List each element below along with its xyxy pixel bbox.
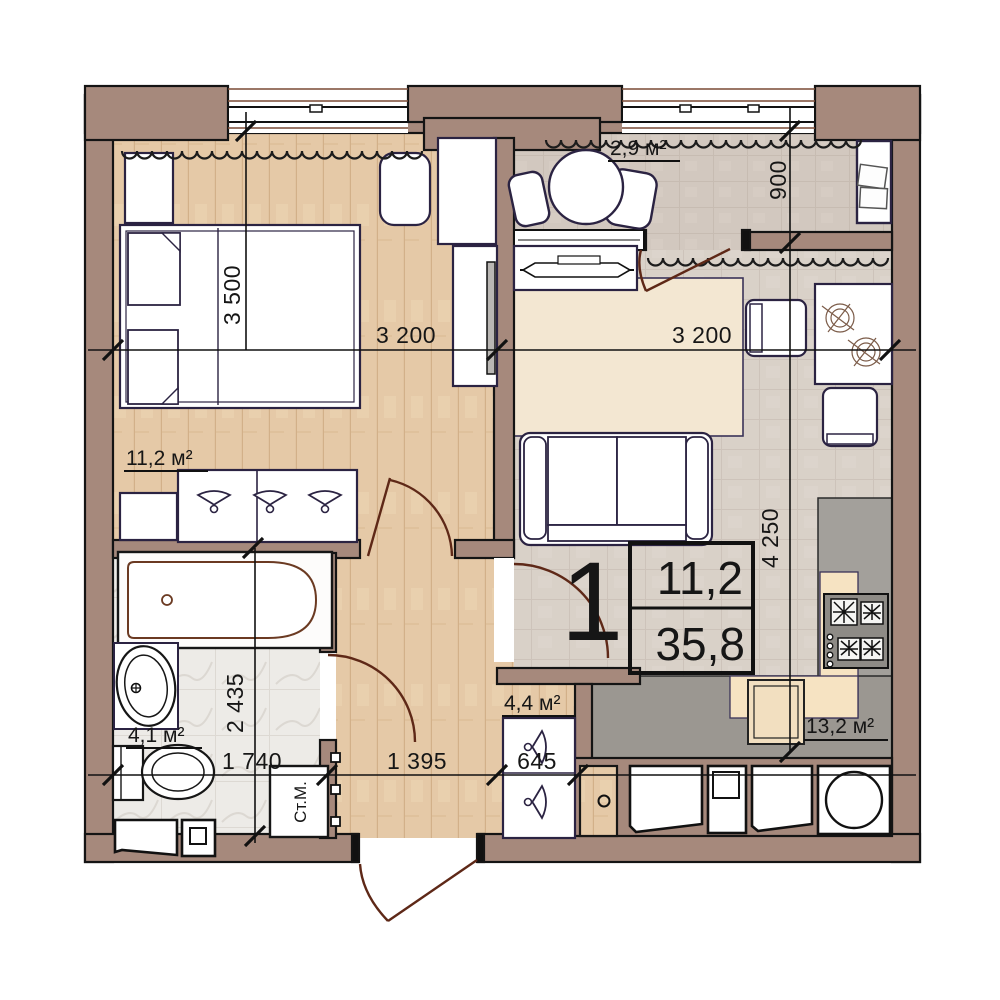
jamb [352, 834, 359, 862]
dining-chair-bottom-back [827, 434, 873, 444]
bedroom-area-label: 11,2 м² [126, 447, 193, 470]
washing-machine-label: Ст.М. [291, 781, 310, 823]
floor-plan-drawing: Ст.М. [0, 0, 1000, 1000]
wall-left [85, 95, 113, 862]
duct-box-inner [190, 828, 206, 844]
living-door-opening [494, 558, 514, 662]
pilaster-top-left [85, 86, 228, 140]
pilaster-top-middle [408, 86, 622, 122]
pilaster-top-right [815, 86, 920, 140]
wardrobe-bedroom [178, 470, 357, 542]
nightstand [125, 153, 173, 223]
washbasin [112, 642, 181, 729]
kitchen-work-table [748, 680, 804, 744]
dining-table [815, 284, 892, 384]
dim-hallway-width: 1 395 [387, 748, 447, 774]
drain-icon [162, 595, 172, 605]
closet-door [580, 766, 617, 836]
dining-chair-left-back [750, 304, 762, 352]
living-area-value: 11,2 [657, 552, 743, 604]
dim-living-width: 3 200 [672, 322, 732, 348]
dim-bedroom-width: 3 200 [376, 322, 436, 348]
pillow [128, 330, 178, 404]
wall-hallway-right [575, 684, 592, 764]
washing-machine: Ст.М. [270, 766, 328, 837]
dresser [120, 493, 177, 540]
rooms-count: 1 [561, 539, 623, 664]
duct-box-inner [713, 772, 739, 798]
bedroom-desk [438, 138, 496, 244]
living-rug [511, 278, 743, 436]
duct-box [115, 820, 177, 855]
bathtub [118, 552, 332, 648]
wall-bedroom-bottom-stub [455, 540, 514, 558]
jamb [477, 834, 484, 862]
dim-bathroom-width: 1 740 [222, 748, 282, 774]
jamb [742, 230, 750, 250]
dim-bedroom-depth: 3 500 [219, 265, 245, 325]
wall-hallway-jog [497, 668, 640, 684]
hallway-area-label: 4,4 м² [504, 692, 560, 715]
bathroom-area-label: 4,1 м² [128, 724, 184, 747]
toilet [113, 745, 214, 800]
floor-plan-page: Ст.М. [0, 0, 1000, 1000]
dim-bathroom-depth: 2 435 [222, 673, 248, 733]
dim-closet-width: 645 [517, 748, 557, 774]
duct-box [630, 766, 702, 832]
boiler-icon [826, 772, 882, 828]
balcony-area-label: 2,9 м² [610, 137, 666, 160]
hall-closet [503, 718, 575, 838]
sofa [520, 433, 712, 545]
wall-balcony-living [745, 232, 892, 250]
pouf-chair [380, 153, 430, 225]
wall-right [892, 95, 920, 862]
dim-balcony-depth: 900 [765, 160, 791, 200]
kitchen-area-label: 13,2 м² [806, 715, 874, 738]
total-area-value: 35,8 [655, 618, 745, 670]
entrance-door [360, 860, 477, 921]
dim-kitchen-depth: 4 250 [757, 508, 783, 568]
